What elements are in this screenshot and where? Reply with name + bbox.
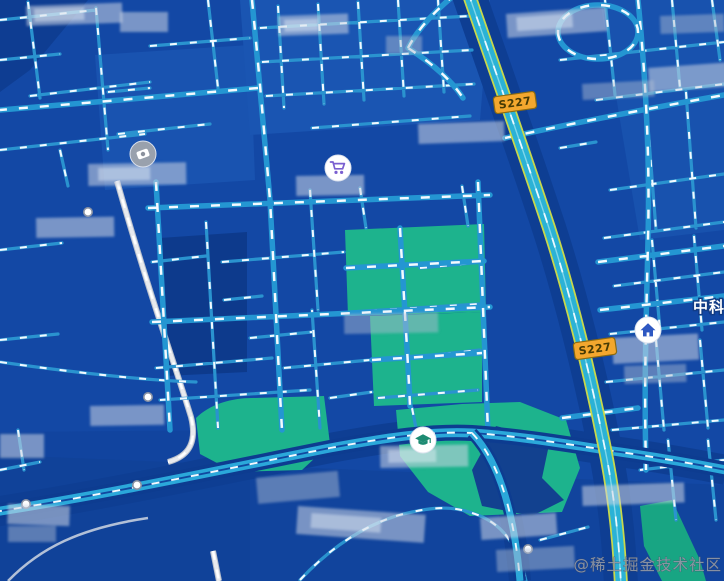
edge-place-label: 中科 bbox=[693, 298, 724, 316]
poi-school[interactable] bbox=[410, 427, 436, 453]
watermark: @稀土掘金技术社区 bbox=[573, 556, 722, 574]
poi-scenic-spot[interactable] bbox=[130, 141, 156, 167]
bus-stop-dot[interactable] bbox=[84, 208, 92, 216]
poi-shopping[interactable] bbox=[325, 155, 351, 181]
poi-residence[interactable] bbox=[635, 317, 661, 343]
map-canvas[interactable]: S227 S227 中 bbox=[0, 0, 724, 581]
park-polygon bbox=[345, 224, 486, 316]
bus-stop-dot[interactable] bbox=[144, 393, 152, 401]
map-viewport[interactable]: S227 S227 中 bbox=[0, 0, 724, 581]
bus-stop-dot[interactable] bbox=[133, 481, 141, 489]
